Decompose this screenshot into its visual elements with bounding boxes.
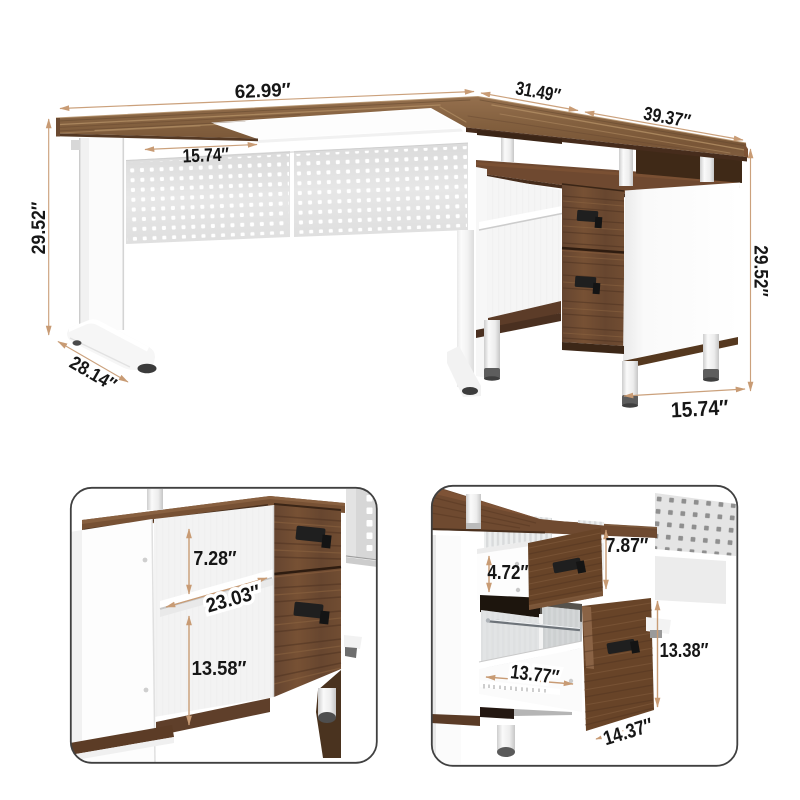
svg-text:29.52′′: 29.52′′: [750, 245, 771, 297]
svg-text:29.52′′: 29.52′′: [27, 201, 49, 254]
svg-text:7.28′′: 7.28′′: [193, 548, 237, 570]
svg-text:62.99′′: 62.99′′: [234, 80, 291, 103]
svg-text:15.74′′: 15.74′′: [182, 143, 229, 167]
svg-text:15.74′′: 15.74′′: [670, 396, 729, 423]
svg-text:4.72′′: 4.72′′: [487, 561, 529, 584]
svg-text:13.58′′: 13.58′′: [192, 658, 247, 680]
svg-text:7.87′′: 7.87′′: [606, 534, 649, 556]
svg-text:13.38′′: 13.38′′: [660, 638, 709, 661]
